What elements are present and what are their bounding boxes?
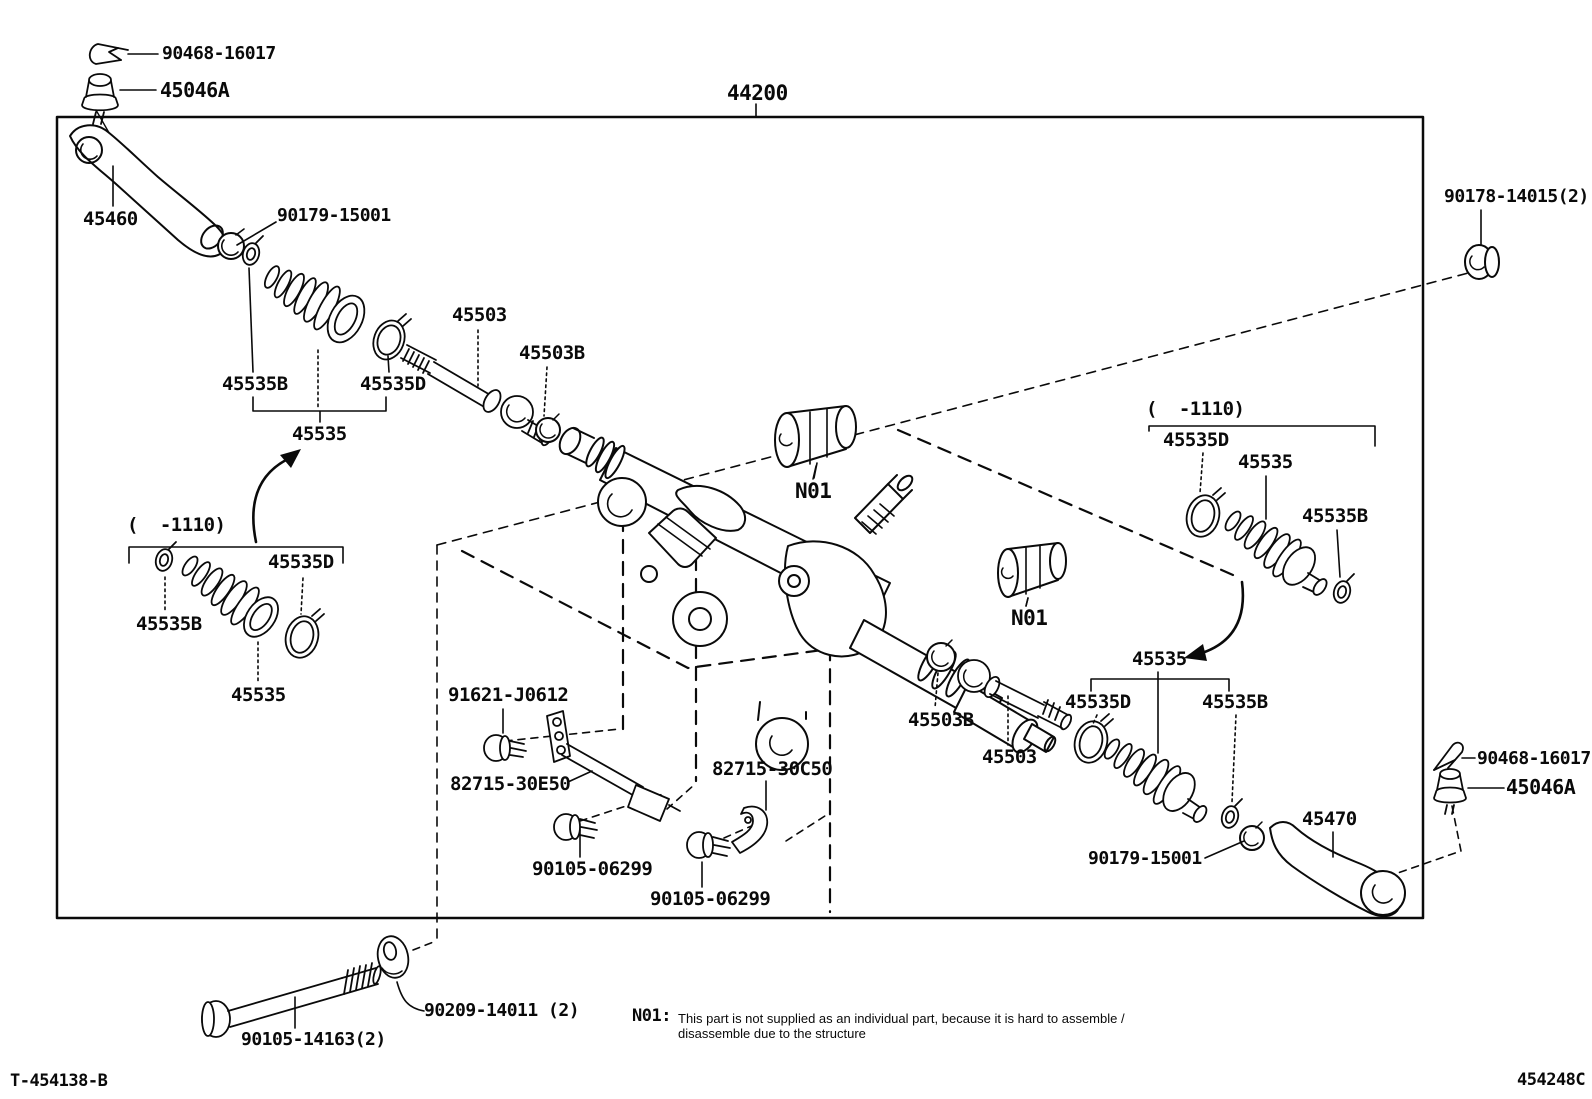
doc-id-right: 454248C [1517,1072,1585,1089]
nut-icon-right-lower [1240,822,1264,850]
boot-clamp-ring-icon-left [281,609,324,661]
bracket-82715-30c50-drawing [732,807,767,853]
part-label-45460: 45460 [83,210,138,229]
part-label-45535-top: 45535 [292,425,347,444]
boot-drawing-lower [1102,737,1209,824]
part-label-90468-16017-bottom: 90468-16017 [1477,750,1591,768]
part-label-90178-14015: 90178-14015(2) [1444,188,1589,206]
boot-clamp-small-icon-right [1331,574,1354,605]
part-label-90179-15001-right: 90179-15001 [1088,850,1202,868]
mount-bushing-icon-b [998,543,1066,606]
bolt-icon-90105-14163 [202,963,382,1037]
cotter-pin-icon-top [90,44,128,64]
steering-gear-drawing [555,424,1057,770]
boot-pointer-arrow-right [1184,582,1243,661]
claw-washer-icon-lower [927,640,955,671]
part-label-45503b-top: 45503B [519,344,585,363]
range-label-right: ( -1110) [1146,400,1244,419]
part-label-90105-06299-b: 90105-06299 [650,890,770,909]
part-label-90105-06299-a: 90105-06299 [532,860,652,879]
boot-pointer-arrow-left [253,449,301,542]
ref-label-n01-a: N01 [795,481,831,502]
part-label-45535b-lower: 45535B [1202,693,1268,712]
tie-rod-end-icon-bottom [1434,769,1466,814]
part-label-82715-30c50: 82715-30C50 [712,760,832,779]
pitman-arm-45470-drawing [1270,822,1405,916]
part-label-45046a-top: 45046A [160,80,229,100]
part-label-45535-right: 45535 [1238,453,1293,472]
note-line-2: disassemble due to the structure [678,1027,866,1042]
part-label-90209-14011: 90209-14011 (2) [424,1002,579,1020]
part-label-45535b-top: 45535B [222,375,288,394]
part-label-45046a-bottom: 45046A [1506,777,1575,797]
part-label-90179-15001-left: 90179-15001 [277,207,391,225]
tie-rod-45460-drawing [70,125,227,256]
range-label-left: ( -1110) [127,516,225,535]
part-label-45503b-lower: 45503B [908,711,974,730]
part-label-45535-lower: 45535 [1132,650,1187,669]
note-ref-n01: N01: [632,1008,671,1025]
part-label-82715-30e50: 82715-30E50 [450,775,570,794]
part-label-45535d-top: 45535D [360,375,426,394]
part-label-45535b-left: 45535B [136,615,202,634]
bolt-icon-90105-06299-a [554,814,597,840]
boot-drawing-top [262,264,372,349]
part-label-45503-top: 45503 [452,306,507,325]
part-label-45503-lower: 45503 [982,748,1037,767]
sensor-link-82715-30e50-drawing [547,711,680,821]
bolt-icon-90105-06299-b [687,832,730,858]
cotter-pin-icon-bottom [1434,743,1463,770]
part-label-45535d-left: 45535D [268,553,334,572]
note-line-1: This part is not supplied as an individu… [678,1012,1125,1027]
part-label-45535b-right: 45535B [1302,507,1368,526]
part-label-90105-14163: 90105-14163(2) [241,1031,386,1049]
ref-label-n01-b: N01 [1011,608,1047,629]
part-label-44200: 44200 [727,83,788,104]
doc-id-left: T-454138-B [10,1073,107,1090]
part-label-91621-j0612: 91621-J0612 [448,686,568,705]
boot-clamp-ring-icon-right [1182,488,1225,540]
part-label-45535-left: 45535 [231,686,286,705]
parts-diagram-page: 90468-16017 45046A 44200 45460 90179-150… [0,0,1592,1099]
part-label-45535d-lower: 45535D [1065,693,1131,712]
part-label-90468-16017-top: 90468-16017 [162,45,276,63]
boot-clamp-small-icon-lower [1219,799,1242,830]
nut-icon-top-right [1465,245,1499,279]
part-label-45470: 45470 [1302,810,1357,829]
claw-washer-icon-top [536,414,560,442]
diagram-artwork [0,0,1592,1099]
part-label-45535d-right: 45535D [1163,431,1229,450]
